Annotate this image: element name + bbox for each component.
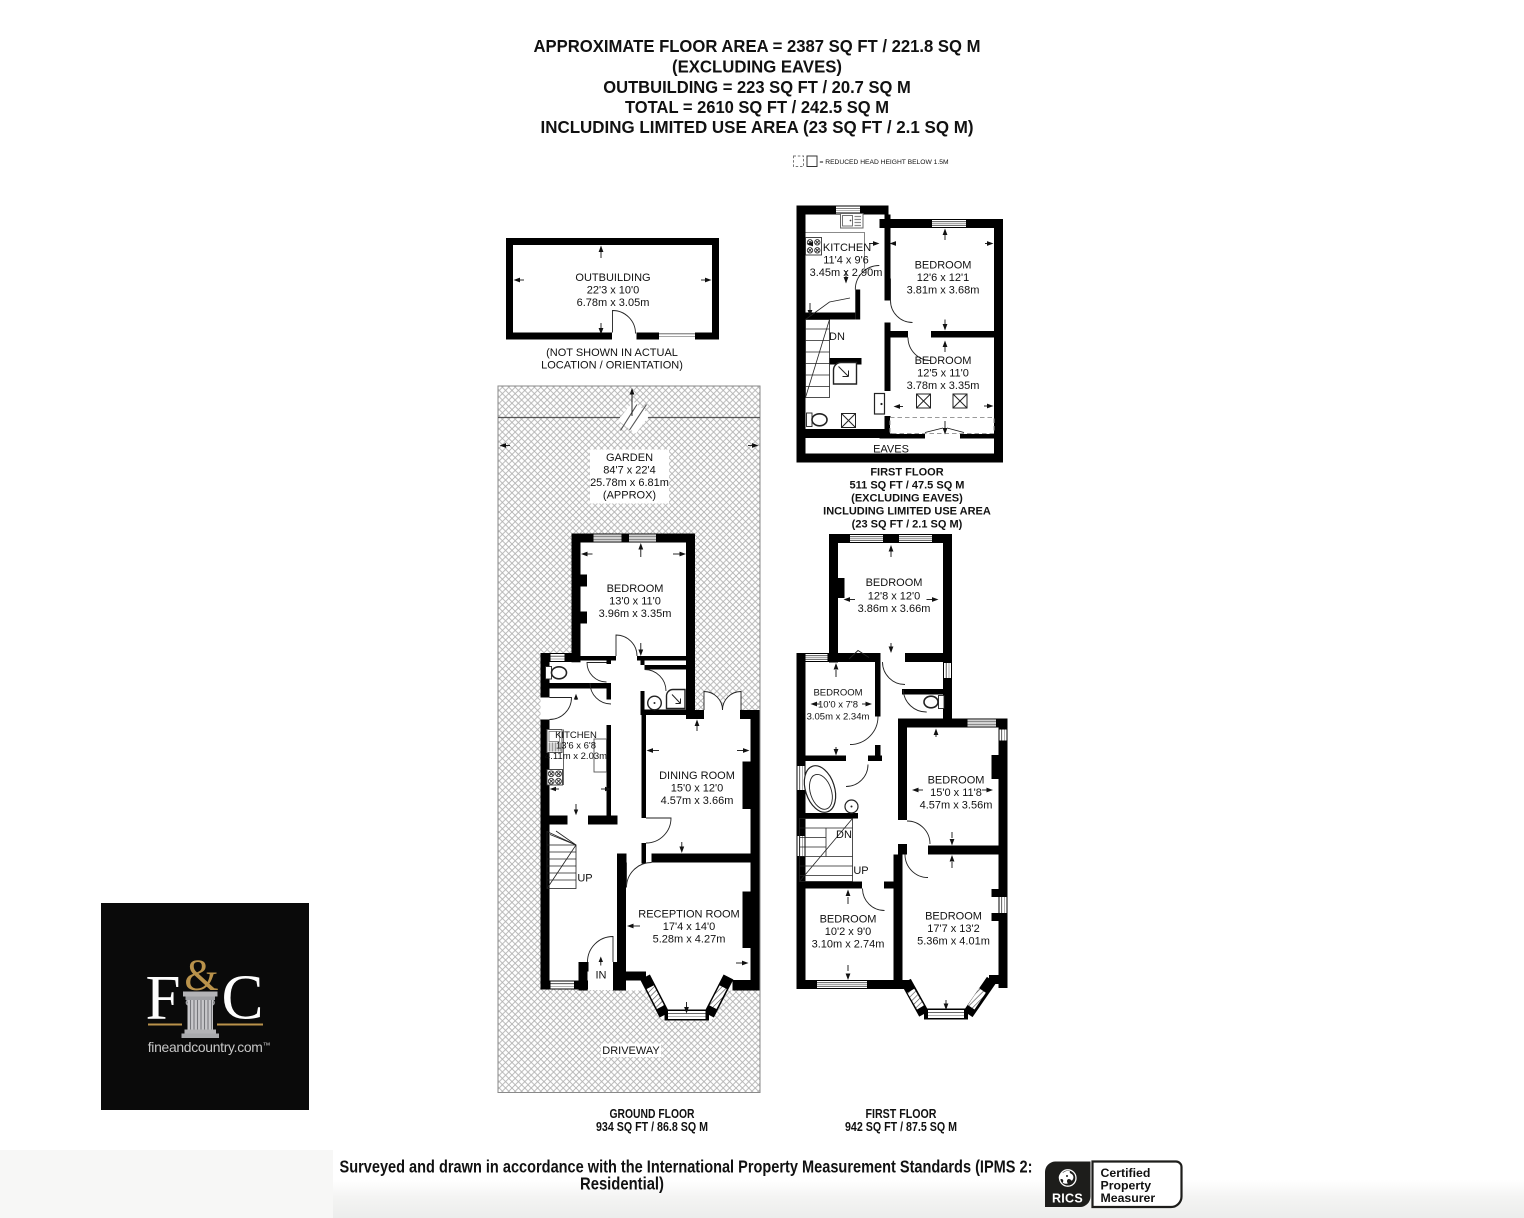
svg-text:GROUND FLOOR: GROUND FLOOR (610, 1107, 695, 1121)
svg-text:4.57m x 3.56m: 4.57m x 3.56m (920, 800, 993, 812)
svg-text:RECEPTION ROOM: RECEPTION ROOM (638, 909, 739, 921)
svg-text:5.28m x 4.27m: 5.28m x 4.27m (653, 934, 726, 946)
svg-text:3.96m x 3.35m: 3.96m x 3.35m (599, 608, 672, 620)
svg-text:Surveyed and drawn in accordan: Surveyed and drawn in accordance with th… (340, 1157, 1033, 1177)
svg-text:IN: IN (596, 970, 607, 982)
svg-text:942 SQ FT / 87.5 SQ M: 942 SQ FT / 87.5 SQ M (845, 1120, 957, 1134)
svg-text:17'4 x 14'0: 17'4 x 14'0 (663, 921, 716, 933)
svg-text:12'5 x 11'0: 12'5 x 11'0 (917, 368, 969, 380)
svg-text:DINING ROOM: DINING ROOM (659, 770, 735, 782)
svg-text:3.10m x 2.74m: 3.10m x 2.74m (812, 939, 885, 951)
svg-text:F: F (145, 963, 180, 1033)
svg-text:OUTBUILDING = 223 SQ FT / 20.7: OUTBUILDING = 223 SQ FT / 20.7 SQ M (603, 77, 911, 97)
svg-text:OUTBUILDING: OUTBUILDING (575, 272, 650, 284)
svg-text:3.78m x 3.35m: 3.78m x 3.35m (907, 380, 980, 392)
svg-text:10'2 x 9'0: 10'2 x 9'0 (825, 926, 871, 938)
svg-text:(NOT SHOWN IN ACTUAL: (NOT SHOWN IN ACTUAL (546, 347, 678, 359)
svg-text:BEDROOM: BEDROOM (915, 260, 972, 272)
svg-text:3.05m x 2.34m: 3.05m x 2.34m (807, 712, 870, 723)
svg-text:84'7 x 22'4: 84'7 x 22'4 (603, 465, 656, 477)
svg-text:13'0 x 11'0: 13'0 x 11'0 (609, 596, 661, 608)
svg-text:LOCATION / ORIENTATION): LOCATION / ORIENTATION) (541, 360, 683, 372)
svg-text:BEDROOM: BEDROOM (925, 911, 982, 923)
svg-text:UP: UP (577, 873, 592, 885)
svg-text:4.57m x 3.66m: 4.57m x 3.66m (661, 795, 734, 807)
svg-text:INCLUDING LIMITED USE AREA (23: INCLUDING LIMITED USE AREA (23 SQ FT / 2… (541, 117, 974, 137)
svg-text:6.78m x 3.05m: 6.78m x 3.05m (577, 297, 650, 309)
svg-text:UP: UP (853, 865, 868, 877)
svg-text:GARDEN: GARDEN (606, 452, 653, 464)
svg-text:(EXCLUDING EAVES): (EXCLUDING EAVES) (851, 493, 963, 505)
svg-text:934 SQ FT / 86.8 SQ M: 934 SQ FT / 86.8 SQ M (596, 1120, 708, 1134)
svg-text:17'7 x 13'2: 17'7 x 13'2 (927, 923, 980, 935)
svg-text:(APPROX): (APPROX) (603, 490, 656, 502)
svg-text:FIRST FLOOR: FIRST FLOOR (866, 1107, 937, 1121)
svg-text:DRIVEWAY: DRIVEWAY (602, 1045, 660, 1057)
svg-text:22'3 x 10'0: 22'3 x 10'0 (587, 285, 640, 297)
svg-text:12'6 x 12'1: 12'6 x 12'1 (917, 272, 970, 284)
svg-text:BEDROOM: BEDROOM (928, 775, 985, 787)
svg-text:25.78m x 6.81m: 25.78m x 6.81m (590, 477, 669, 489)
svg-text:RICS: RICS (1052, 1192, 1083, 1206)
svg-text:Residential): Residential) (580, 1174, 664, 1194)
svg-text:15'0 x 12'0: 15'0 x 12'0 (671, 783, 724, 795)
svg-text:DN: DN (836, 829, 852, 841)
svg-text:11'4 x 9'6: 11'4 x 9'6 (823, 255, 869, 267)
svg-text:APPROXIMATE FLOOR AREA = 2387: APPROXIMATE FLOOR AREA = 2387 SQ FT / 22… (534, 36, 981, 56)
svg-text:BEDROOM: BEDROOM (866, 577, 923, 589)
svg-text:5.36m x 4.01m: 5.36m x 4.01m (917, 936, 990, 948)
svg-text:(EXCLUDING EAVES): (EXCLUDING EAVES) (672, 57, 842, 77)
svg-text:= REDUCED HEAD HEIGHT BELOW 1.: = REDUCED HEAD HEIGHT BELOW 1.5M (820, 159, 949, 166)
svg-text:10'0 x 7'8: 10'0 x 7'8 (818, 700, 858, 711)
svg-text:fineandcountry.com™: fineandcountry.com™ (148, 1039, 271, 1055)
svg-text:12'8 x 12'0: 12'8 x 12'0 (868, 591, 921, 603)
svg-text:3.86m x 3.66m: 3.86m x 3.66m (858, 603, 931, 615)
svg-text:TOTAL = 2610 SQ FT / 242.5 SQ: TOTAL = 2610 SQ FT / 242.5 SQ M (625, 97, 889, 117)
svg-text:BEDROOM: BEDROOM (820, 914, 877, 926)
svg-text:13'6 x 6'8: 13'6 x 6'8 (556, 741, 596, 752)
svg-text:DN: DN (829, 331, 845, 343)
svg-text:15'0 x 11'8: 15'0 x 11'8 (930, 787, 982, 799)
svg-text:KITCHEN: KITCHEN (823, 242, 871, 254)
svg-text:(23 SQ FT / 2.1 SQ M): (23 SQ FT / 2.1 SQ M) (852, 519, 963, 531)
svg-text:EAVES: EAVES (873, 444, 909, 456)
svg-text:C: C (221, 963, 263, 1033)
svg-text:BEDROOM: BEDROOM (915, 355, 972, 367)
svg-text:3.81m x 3.68m: 3.81m x 3.68m (907, 285, 980, 297)
svg-text:BEDROOM: BEDROOM (607, 583, 664, 595)
svg-text:INCLUDING LIMITED USE AREA: INCLUDING LIMITED USE AREA (823, 506, 991, 518)
svg-text:3.45m x 2.90m: 3.45m x 2.90m (810, 267, 883, 279)
svg-text:KITCHEN: KITCHEN (555, 730, 597, 741)
svg-text:Measurer: Measurer (1101, 1191, 1156, 1205)
svg-text:BEDROOM: BEDROOM (813, 688, 862, 699)
svg-text:FIRST FLOOR: FIRST FLOOR (870, 467, 943, 479)
svg-text:511 SQ FT / 47.5 SQ M: 511 SQ FT / 47.5 SQ M (850, 480, 965, 492)
svg-text:4.11m x 2.03m: 4.11m x 2.03m (545, 751, 607, 762)
